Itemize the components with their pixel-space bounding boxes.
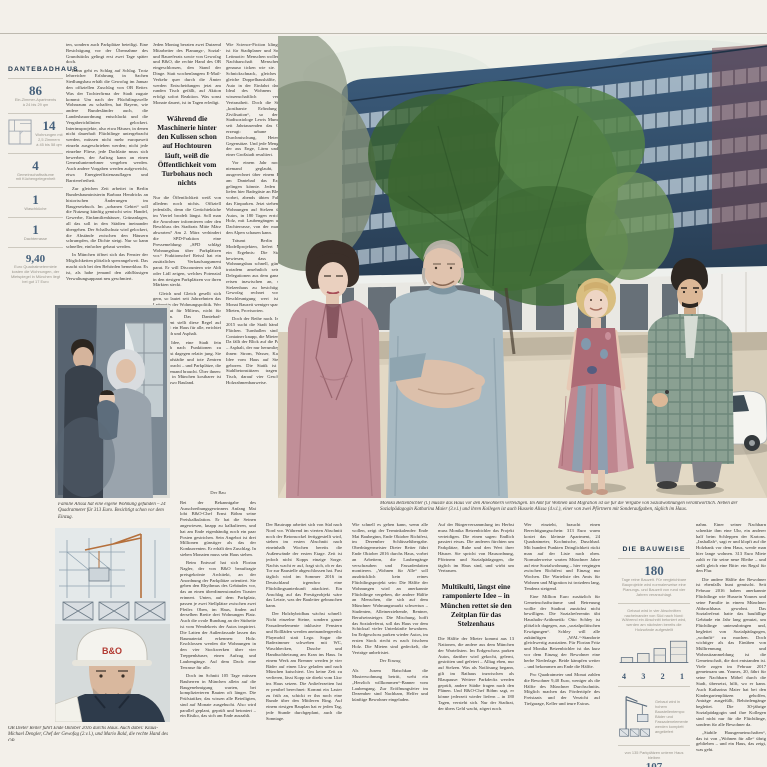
divider [8, 78, 63, 79]
paragraph: Zur gleichen Zeit arbeitet in Berlin Bun… [66, 186, 148, 250]
article-column-5: Der Bautrupp arbeitet sich von Süd nach … [266, 522, 342, 760]
stat-label: Wohnungen mit 2,5 Zimmern à 45 bis 58 qm [35, 133, 63, 148]
phase-4: 4 [622, 672, 626, 681]
paragraph: Dann geht es Schlag auf Schlag. Trotz le… [66, 68, 148, 184]
paragraph: Beim Entwurf hat sich Florian Nagler, de… [180, 560, 256, 670]
main-illustration-stelzenhaus [278, 36, 767, 498]
divider [618, 745, 690, 746]
stat-value: 1 [8, 223, 63, 237]
crane-note: Gebaut wird in hohem Baustellentempo: Bä… [655, 700, 690, 734]
article-column-8: Wer einzieht, braucht einen Berechtigung… [524, 522, 600, 760]
stat-laundry: 1 Waschküche [8, 193, 63, 212]
paragraph: Die andere Hälfte der Bewohner ist ebenf… [696, 577, 766, 728]
stat-value: 4 [8, 159, 63, 173]
paragraph: Nur die Öffentlichkeit weiß von alledem … [153, 195, 221, 288]
paragraph-group: Bei der Bekanntgabe des Ausschreibungsge… [180, 500, 256, 719]
paragraph: nahm. Einer seiner Nachbarn schenkte ihm… [696, 522, 766, 574]
stat-label-pre: von 135 Parkplätzen unterm Haus bleiben [618, 751, 690, 761]
stat-value: 107 [618, 761, 690, 767]
divider [8, 247, 63, 248]
paragraph: ten, sondern auch Parkplätze beteiligt. … [66, 42, 148, 65]
paragraph: Wer einzieht, braucht einen Berechtigung… [524, 522, 600, 592]
method-note: Gebaut wird in vier Abschnitten nacheina… [618, 609, 690, 634]
paragraph-group: ten, sondern auch Parkplätze beteiligt. … [66, 42, 148, 281]
infographic-bauweise: DIE BAUWEISE 180 Tage reine Bauzeit. Für… [618, 546, 690, 767]
stat-value: 86 [8, 84, 63, 98]
infographic-title: DANTEBADHAUS [8, 66, 63, 73]
pull-quote-turbohaus: Während die Maschinerie hinter den Kulis… [154, 114, 220, 188]
stat-commonrooms: 4 Gemeinschaftsräume mit Küchengelegenhe… [8, 159, 63, 183]
article-column-1: ten, sondern auch Parkplätze beteiligt. … [66, 42, 148, 298]
family-illustration [55, 305, 170, 498]
caption-family: Familie Alissa hat eine eigene Wohnung g… [58, 502, 170, 522]
paragraph-group: Auf der Bürgerversammlung im Herbst muss… [438, 522, 514, 574]
caption-main: Monika Betzenbichler (l.) musste das Hau… [380, 501, 766, 516]
crane-note-row: Gebaut wird in hohem Baustellentempo: Bä… [618, 692, 690, 740]
paragraph: Doch im Schnitt 105 Tage müssen Bauherre… [180, 673, 256, 719]
stat-rent: 9,40 Euro Quadratmetermiete kosten die W… [8, 253, 63, 285]
helmet-logo: B&O [102, 646, 122, 656]
infographic-title: DIE BAUWEISE [618, 546, 690, 553]
section-marker-bau: Der Bau [180, 490, 256, 496]
stat-value: 180 [618, 564, 690, 578]
paragraph: Als Jusem Batschkan die Musterwohnung be… [352, 668, 428, 703]
stat-value: 1 [8, 193, 63, 207]
phase-2: 2 [661, 672, 665, 681]
paragraph-group: Jeden Montag beraten zwei Dutzend Mitarb… [153, 42, 221, 106]
phase-1: 1 [680, 672, 684, 681]
divider [618, 686, 690, 687]
paragraph: Bei der Bekanntgabe des Ausschreibungsge… [180, 500, 256, 558]
paragraph: Der Bautrupp arbeitet sich von Süd nach … [266, 522, 342, 609]
paragraph-group: Der Bautrupp arbeitet sich von Süd nach … [266, 522, 342, 722]
stat-flats: 14 Wohnungen mit 2,5 Zimmern à 45 bis 58… [8, 119, 63, 148]
divider [8, 217, 63, 218]
red-facade-section [712, 44, 767, 250]
stat-label: Tage reine Bauzeit. Für vergleichbare Ba… [618, 578, 690, 598]
crane-icon [618, 692, 652, 740]
stat-label: Euro Quadratmetermiete kosten die Wohnun… [8, 265, 63, 285]
paragraph-group: Als Jusem Batschkan die Musterwohnung be… [352, 668, 428, 703]
article-column-4: Der Bau Bei der Bekanntgabe des Ausschre… [180, 487, 256, 760]
phase-3: 3 [641, 672, 645, 681]
stat-value: 14 [35, 119, 63, 133]
paragraph: Wie schnell es gehen kann, wenn alle wol… [352, 522, 428, 655]
section-marker-einzug: Der Einzug [352, 658, 428, 664]
paragraph: Eine Million Euro zusätzlich für Gemeins… [524, 594, 600, 669]
divider [8, 113, 63, 114]
paragraph-group: Wer einzieht, braucht einen Berechtigung… [524, 522, 600, 707]
paragraph-group: nahm. Einer seiner Nachbarn schenkte ihm… [696, 522, 766, 753]
paragraph-group: Die Hälfte der Mieter kommt aus 13 Natio… [438, 636, 514, 711]
divider [8, 187, 63, 188]
stat-label: Dachterrasse [8, 237, 63, 242]
paragraph: Die Hälfte der Mieter kommt aus 13 Natio… [438, 636, 514, 711]
stat-label: Waschküche [8, 207, 63, 212]
modules [63, 602, 165, 620]
stat-roofterrace: 1 Dachterrasse [8, 223, 63, 242]
newspaper-page: DANTEBADHAUS 86 Ein-Zimmer-Apartments à … [0, 0, 767, 767]
paragraph: In München öffnet sich das Fenster der M… [66, 252, 148, 281]
article-column-7: Auf der Bürgerversammlung im Herbst muss… [438, 522, 514, 760]
infographic-dantebadhaus: DANTEBADHAUS 86 Ein-Zimmer-Apartments à … [8, 66, 63, 289]
phase-numbers: 4 3 2 1 [618, 672, 690, 681]
construction-illustration: B&O [55, 528, 170, 722]
caption-construction: OB Dieter Reiter führt Ende Oktober 2016… [8, 726, 168, 741]
article-column-6: Wie schnell es gehen kann, wenn alle wol… [352, 522, 428, 760]
stat-apartments: 86 Ein-Zimmer-Apartments à 24 bis 29 qm [8, 84, 63, 108]
divider [618, 558, 690, 559]
paragraph: Der Holzhybridbau wächst schnell: Nicht … [266, 611, 342, 721]
paragraph: „Stabile Hausgemeinschaften“, das ist vo… [696, 730, 766, 753]
top-rule [0, 33, 767, 34]
divider [618, 603, 690, 604]
floorplan-icon [8, 119, 32, 145]
paragraph-group: Wie schnell es gehen kann, wenn alle wol… [352, 522, 428, 655]
pull-quote-multikulti: Multikulti, längst eine ramponierte Idee… [439, 582, 513, 628]
paragraph: Jeden Montag beraten zwei Dutzend Mitarb… [153, 42, 221, 106]
divider [8, 153, 63, 154]
paragraph: Auf der Bürgerversammlung im Herbst muss… [438, 522, 514, 574]
paragraph: Pro Quadratmeter und Monat zahlen die Be… [524, 672, 600, 707]
article-column-9: nahm. Einer seiner Nachbarn schenkte ihm… [696, 522, 766, 760]
stat-label: Ein-Zimmer-Apartments à 24 bis 29 qm [8, 98, 63, 108]
stat-parking: von 135 Parkplätzen unterm Haus bleiben … [618, 751, 690, 767]
stat-label: Gemeinschaftsräume mit Küchengelegenheit [8, 173, 63, 183]
phases-diagram [618, 636, 690, 666]
stat-days: 180 Tage reine Bauzeit. Für vergleichbar… [618, 564, 690, 598]
